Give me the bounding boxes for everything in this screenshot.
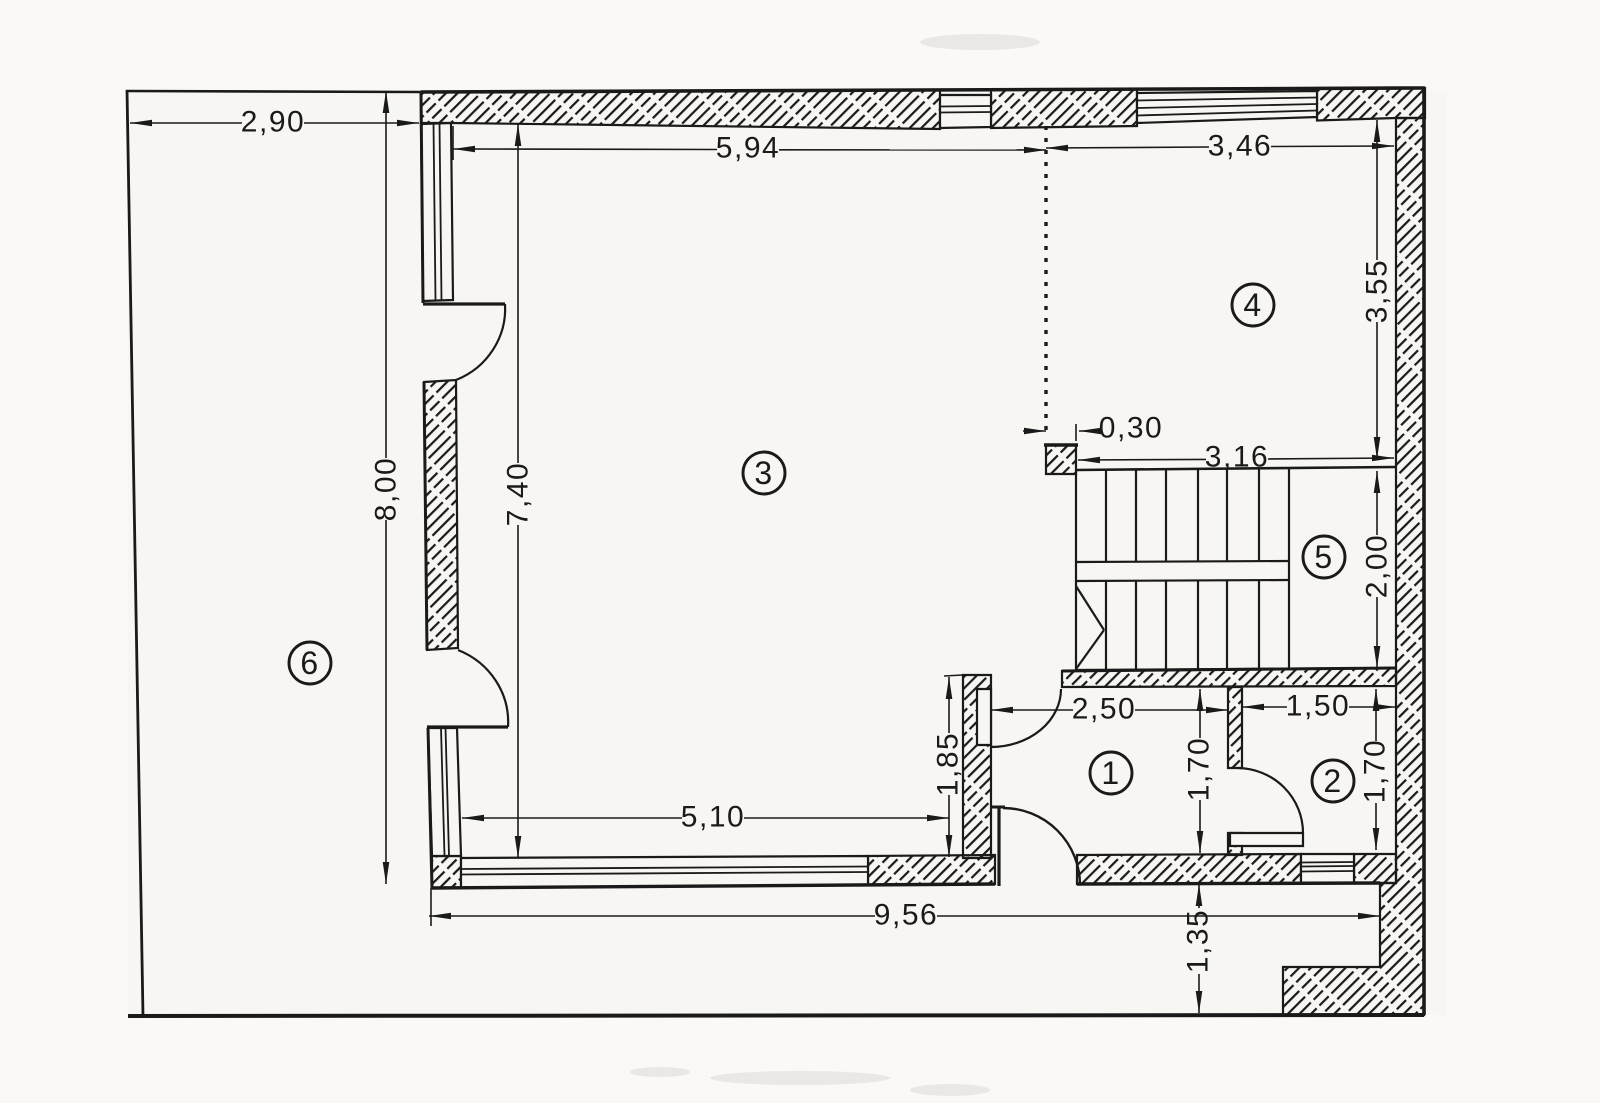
svg-text:0,30: 0,30 <box>1099 412 1163 445</box>
svg-text:3,46: 3,46 <box>1208 130 1272 163</box>
svg-text:2,00: 2,00 <box>1361 534 1394 598</box>
svg-text:3,16: 3,16 <box>1205 441 1269 474</box>
svg-text:5,10: 5,10 <box>681 801 745 834</box>
svg-text:5,94: 5,94 <box>716 132 780 165</box>
svg-text:3,55: 3,55 <box>1361 259 1394 323</box>
svg-text:1,70: 1,70 <box>1183 737 1216 801</box>
svg-text:8,00: 8,00 <box>370 457 403 521</box>
svg-text:1,70: 1,70 <box>1359 739 1392 803</box>
svg-text:1,50: 1,50 <box>1286 690 1350 723</box>
svg-text:1,85: 1,85 <box>932 732 965 796</box>
svg-text:1: 1 <box>1101 755 1120 791</box>
svg-text:4: 4 <box>1243 287 1262 323</box>
svg-text:2,90: 2,90 <box>241 106 305 139</box>
svg-text:5: 5 <box>1314 539 1333 575</box>
svg-text:3: 3 <box>754 455 773 491</box>
svg-text:1,35: 1,35 <box>1182 909 1215 973</box>
svg-text:9,56: 9,56 <box>874 899 938 932</box>
svg-text:6: 6 <box>300 645 319 681</box>
svg-text:2,50: 2,50 <box>1072 693 1136 726</box>
svg-text:2: 2 <box>1323 763 1342 799</box>
svg-text:7,40: 7,40 <box>502 462 535 526</box>
